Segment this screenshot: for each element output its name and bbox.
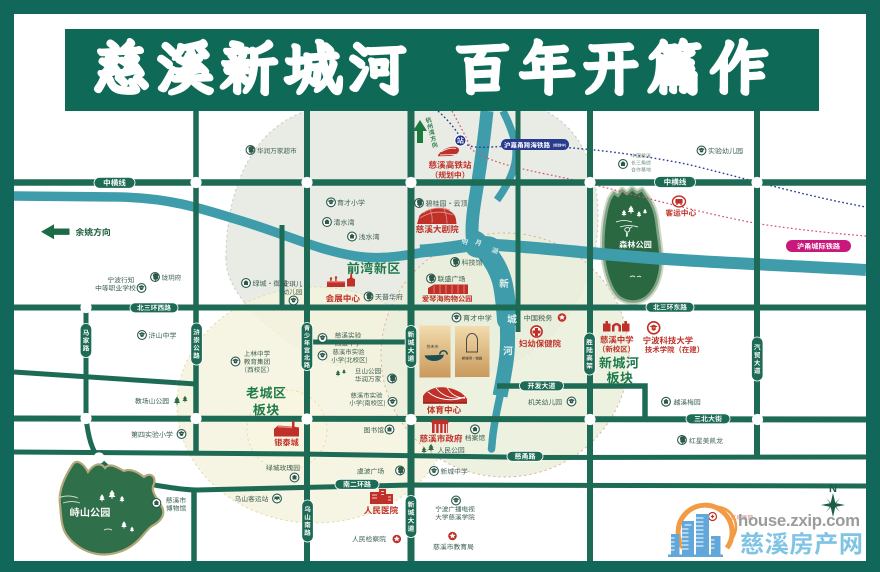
svg-text:house.zxip.com: house.zxip.com [738,511,860,530]
